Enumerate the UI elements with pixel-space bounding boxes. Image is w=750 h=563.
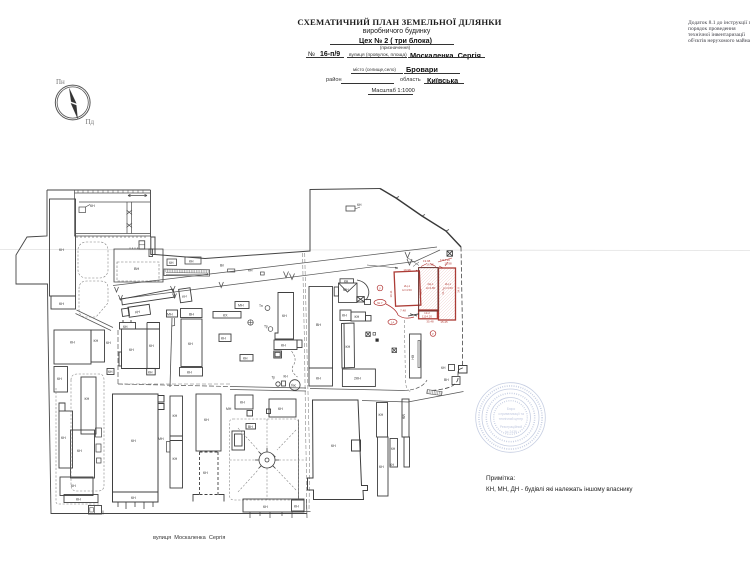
svg-text:Пд: Пд bbox=[86, 118, 95, 126]
svg-text:МН: МН bbox=[238, 304, 244, 308]
svg-text:КН: КН bbox=[248, 269, 253, 273]
svg-text:Тр: Тр bbox=[264, 325, 268, 329]
svg-text:КН: КН bbox=[344, 280, 349, 284]
svg-text:КН: КН bbox=[57, 377, 62, 381]
svg-text:КХ: КХ bbox=[223, 314, 228, 318]
svg-text:КН: КН bbox=[131, 439, 136, 443]
svg-text:КН: КН bbox=[342, 314, 347, 318]
svg-text:КН: КН bbox=[379, 413, 384, 417]
svg-text:ВН: ВН bbox=[248, 425, 253, 429]
svg-text:КН: КН bbox=[94, 339, 99, 343]
svg-text:16.98: 16.98 bbox=[426, 263, 434, 267]
svg-text:КН: КН bbox=[263, 505, 268, 509]
svg-text:КН: КН bbox=[169, 261, 174, 265]
svg-text:КН: КН bbox=[77, 449, 82, 453]
svg-text:Н=4.50: Н=4.50 bbox=[402, 288, 412, 292]
svg-text:30.2: 30.2 bbox=[419, 289, 423, 295]
svg-text:КН: КН bbox=[441, 366, 446, 370]
svg-text:19.98: 19.98 bbox=[423, 259, 431, 263]
svg-text:ВН: ВН bbox=[316, 323, 321, 327]
svg-text:КН: КН bbox=[148, 371, 153, 375]
svg-text:КН: КН bbox=[59, 248, 64, 252]
svg-text:№ Г: № Г bbox=[377, 301, 383, 305]
svg-text:КН: КН bbox=[108, 370, 113, 374]
svg-text:КН: КН bbox=[294, 505, 299, 509]
svg-text:7.48: 7.48 bbox=[400, 309, 406, 313]
svg-text:КН: КН bbox=[129, 348, 134, 352]
svg-text:КН: КН bbox=[243, 356, 248, 360]
svg-text:ВН: ВН bbox=[444, 378, 449, 382]
svg-text:Вп: Вп bbox=[220, 264, 224, 268]
svg-text:КН: КН bbox=[182, 294, 187, 299]
svg-text:Тр: Тр bbox=[272, 376, 276, 380]
svg-text:КН: КН bbox=[411, 355, 415, 360]
svg-text:КН: КН bbox=[278, 407, 283, 411]
svg-text:У: У bbox=[379, 287, 381, 291]
svg-text:КН: КН bbox=[221, 337, 226, 341]
svg-text:КН: КН bbox=[70, 341, 75, 345]
svg-text:КН: КН bbox=[284, 375, 289, 379]
svg-text:19.98: 19.98 bbox=[403, 268, 411, 272]
svg-text:Бюро: Бюро bbox=[507, 407, 515, 411]
svg-text:1114.20: 1114.20 bbox=[440, 258, 450, 262]
svg-text:КН: КН bbox=[123, 325, 128, 329]
svg-text:Пн: Пн bbox=[56, 78, 65, 86]
svg-text:КН: КН bbox=[355, 315, 360, 319]
svg-text:бас: бас bbox=[291, 384, 297, 388]
svg-text:15.45: 15.45 bbox=[440, 320, 448, 324]
svg-text:Реєстраційний: Реєстраційний bbox=[500, 425, 523, 429]
svg-text:КН: КН bbox=[76, 498, 81, 502]
svg-text:ВН: ВН bbox=[134, 267, 140, 271]
svg-text:КН: КН bbox=[173, 457, 178, 461]
svg-text:технічний центр: технічний центр bbox=[499, 417, 524, 421]
svg-text:КН: КН bbox=[281, 344, 286, 348]
svg-text:КН: КН bbox=[187, 371, 192, 375]
svg-text:МН: МН bbox=[167, 313, 173, 317]
svg-text:1А: 1А bbox=[391, 321, 395, 325]
svg-text:1114.20: 1114.20 bbox=[422, 315, 432, 319]
svg-text:КН: КН bbox=[71, 484, 76, 488]
svg-text:КН: КН bbox=[173, 414, 178, 418]
svg-text:ВН: ВН bbox=[189, 313, 194, 317]
svg-text:КН: КН bbox=[149, 344, 154, 348]
svg-text:31.1: 31.1 bbox=[441, 289, 445, 295]
svg-text:КН: КН bbox=[203, 471, 208, 475]
svg-text:2КН: 2КН bbox=[354, 377, 361, 381]
svg-text:КН: КН bbox=[106, 341, 111, 345]
svg-text:КН: КН bbox=[131, 496, 136, 500]
svg-text:КН: КН bbox=[316, 377, 321, 381]
svg-text:Н=4.80: Н=4.80 bbox=[426, 286, 436, 290]
svg-text:КН: КН bbox=[346, 345, 351, 349]
svg-text:КН: КН bbox=[135, 310, 141, 315]
svg-text:КН: КН bbox=[357, 203, 362, 207]
svg-text:КН: КН bbox=[379, 465, 384, 469]
svg-text:МН: МН bbox=[343, 288, 349, 292]
svg-text:КН: КН bbox=[85, 397, 90, 401]
svg-text:МН: МН bbox=[402, 414, 406, 420]
svg-text:МН: МН bbox=[226, 407, 232, 411]
svg-text:У: У bbox=[432, 332, 434, 336]
svg-text:КН: КН bbox=[204, 418, 209, 422]
svg-text:КН: КН bbox=[331, 444, 336, 448]
svg-text:Тп: Тп bbox=[259, 304, 263, 308]
svg-text:КН: КН bbox=[391, 447, 396, 451]
svg-text:КН: КН bbox=[282, 314, 287, 318]
svg-text:КН: КН bbox=[390, 463, 395, 467]
svg-text:19.11: 19.11 bbox=[389, 290, 393, 297]
svg-text:КН: КН bbox=[189, 260, 194, 264]
svg-text:КН: КН bbox=[240, 401, 245, 405]
svg-text:34.8: 34.8 bbox=[457, 287, 461, 293]
svg-text:КН: КН bbox=[59, 302, 64, 306]
svg-text:№ 2439: № 2439 bbox=[505, 430, 517, 434]
svg-text:35.48: 35.48 bbox=[426, 320, 434, 324]
svg-text:з приватизації та: з приватизації та bbox=[498, 412, 524, 416]
svg-text:МН: МН bbox=[158, 437, 164, 441]
svg-text:КН: КН bbox=[188, 342, 193, 346]
svg-text:КН: КН bbox=[61, 436, 66, 440]
svg-text:КН: КН bbox=[90, 204, 95, 208]
